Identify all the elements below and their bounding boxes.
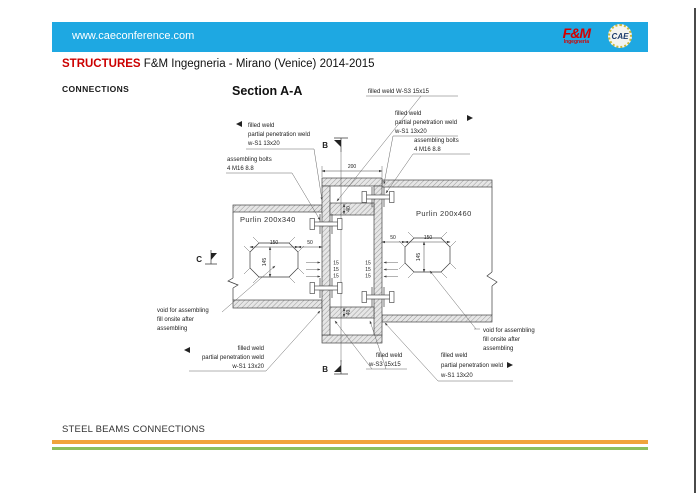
box-column — [322, 178, 382, 343]
svg-text:15: 15 — [333, 274, 339, 280]
svg-text:assembling bolts: assembling bolts — [414, 138, 459, 144]
svg-text:filled weld: filled weld — [441, 353, 467, 359]
svg-text:filled weld: filled weld — [376, 353, 402, 359]
dim-left-gap: 50 — [307, 240, 313, 246]
left-access-hole: 150 50 145 — [244, 237, 322, 283]
svg-text:w-S1 13x20: w-S1 13x20 — [394, 129, 427, 135]
svg-text:fill onsite after: fill onsite after — [157, 317, 194, 323]
conference-url: www.caeconference.com — [72, 30, 194, 42]
svg-text:filled weld: filled weld — [395, 111, 421, 117]
dim-left-hole-height: 145 — [262, 258, 268, 267]
svg-text:partial penetration weld: partial penetration weld — [441, 363, 503, 369]
svg-text:C: C — [196, 255, 202, 264]
svg-text:40: 40 — [346, 206, 352, 212]
section-marker-c: C — [196, 250, 217, 264]
svg-text:15: 15 — [365, 267, 371, 273]
dim-right-hole-height: 145 — [416, 253, 422, 262]
annotation-left-void: void for assembling fill onsite after as… — [157, 266, 275, 332]
svg-text:15: 15 — [333, 267, 339, 273]
fm-logo-subtext: Ingegneria — [563, 40, 590, 45]
svg-text:40: 40 — [346, 310, 352, 316]
svg-text:15: 15 — [365, 274, 371, 280]
subtitle-label: F&M Ingegneria - Mirano (Venice) 2014-20… — [144, 58, 375, 70]
svg-text:200: 200 — [348, 164, 357, 170]
svg-text:partial penetration weld: partial penetration weld — [248, 132, 310, 138]
connections-label: CONNECTIONS — [62, 84, 129, 94]
dim-top-width: 200 — [322, 164, 382, 177]
slide: www.caeconference.com F&M Ingegneria CAE… — [0, 0, 700, 493]
right-access-hole: 50 150 145 — [382, 232, 456, 278]
upper-diaphragm — [330, 203, 374, 215]
dim-right-hole-width: 150 — [424, 235, 433, 241]
svg-text:15: 15 — [333, 261, 339, 267]
purlin-left-label: Purlin 200x340 — [240, 215, 296, 224]
svg-text:partial penetration weld: partial penetration weld — [395, 120, 457, 126]
right-purlin-bottom-flange — [382, 315, 492, 322]
left-purlin-bottom-flange — [233, 300, 322, 308]
slide-right-border — [694, 8, 696, 493]
svg-text:assembling bolts: assembling bolts — [227, 157, 272, 163]
svg-text:assembling: assembling — [157, 326, 187, 332]
lower-diaphragm — [330, 307, 374, 318]
annotation-left-bottom-weld: filled weld partial penetration weld w-S… — [184, 311, 320, 371]
svg-text:filled weld: filled weld — [238, 346, 264, 352]
svg-text:fill onsite after: fill onsite after — [483, 337, 520, 343]
slide-title: STRUCTURES F&M Ingegneria - Mirano (Veni… — [62, 58, 375, 70]
svg-text:w-S1 13x20: w-S1 13x20 — [231, 364, 264, 370]
dim-right-gap: 50 — [390, 235, 396, 241]
section-marker-b-bottom: B — [322, 360, 348, 374]
svg-text:w-S1 13x20: w-S1 13x20 — [440, 373, 473, 379]
svg-text:filled weld: filled weld — [248, 123, 274, 129]
footer-stripe-green — [52, 447, 648, 451]
annotation-bottom-center-weld: filled weld w-S3 15x15 — [335, 321, 407, 369]
svg-text:B: B — [322, 365, 328, 374]
fm-ingegneria-logo: F&M Ingegneria — [563, 26, 590, 45]
annotation-right-void: void for assembling fill onsite after as… — [430, 271, 535, 352]
svg-text:w-S1 13x20: w-S1 13x20 — [247, 141, 280, 147]
svg-text:4 M16 8.8: 4 M16 8.8 — [227, 166, 254, 172]
header-bar: www.caeconference.com F&M Ingegneria CAE — [52, 22, 648, 52]
box-bottom-plate — [322, 335, 382, 343]
left-purlin-top-flange — [233, 205, 322, 212]
svg-text:4 M16 8.8: 4 M16 8.8 — [414, 147, 441, 153]
box-left-plate — [322, 186, 330, 335]
left-purlin-break-line — [228, 212, 238, 300]
weld-arrow-left-top — [236, 121, 242, 127]
svg-text:15: 15 — [365, 261, 371, 267]
svg-text:partial penetration weld: partial penetration weld — [202, 355, 264, 361]
footer-title: STEEL BEAMS CONNECTIONS — [62, 424, 205, 435]
weld-arrow-bottom-right — [507, 362, 513, 368]
section-marker-b-top: B — [322, 138, 348, 152]
right-purlin-top-flange — [382, 180, 492, 187]
cae-logo: CAE — [608, 24, 632, 48]
footer-stripe-orange — [52, 440, 648, 444]
weld-arrow-right-top — [467, 115, 473, 121]
section-drawing: 150 50 145 50 150 145 200 40 40 — [140, 80, 560, 410]
svg-text:void for assembling: void for assembling — [483, 328, 535, 334]
right-purlin — [382, 180, 497, 322]
svg-text:filled weld W-S3 15x15: filled weld W-S3 15x15 — [368, 89, 430, 95]
purlin-right-label: Purlin 200x460 — [416, 209, 472, 218]
svg-text:void for assembling: void for assembling — [157, 308, 209, 314]
box-right-plate — [374, 186, 382, 335]
svg-text:assembling: assembling — [483, 346, 513, 352]
svg-text:B: B — [322, 141, 328, 150]
weld-arrow-left-bottom — [184, 347, 190, 353]
brand-label: STRUCTURES — [62, 58, 141, 70]
dim-left-hole-width: 150 — [270, 240, 279, 246]
right-purlin-break-line — [487, 187, 497, 315]
fm-logo-text: F&M — [563, 26, 590, 40]
